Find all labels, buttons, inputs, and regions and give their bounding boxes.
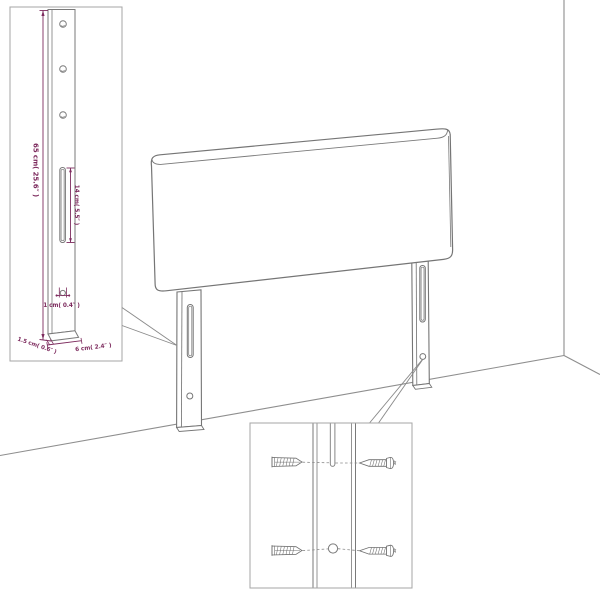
inset-leader-lines [122,308,177,346]
leg-height-dimension-label: 65 cm( 25.6″ ) [32,143,40,197]
hole-diameter-dimension-label: 1 cm( 0.4″ ) [43,303,80,309]
post-small-hole-icon [60,290,65,295]
screw-head [387,457,394,468]
headboard-left-leg [177,290,204,432]
right-leg-slot-inner [421,267,424,320]
mounting-detail-inset [250,423,412,588]
left-leg-slot-inner [189,306,192,356]
leg-detail-inset: 65 cm( 25.6″ ) 14 cm( 5.5″ ) 1 cm( 0.4″ … [10,7,122,361]
left-leg-side-edge [181,292,182,427]
leader-line-lower [122,326,177,346]
floor-line-right [564,356,600,375]
callout-line-left [370,359,423,423]
inset-box [250,423,412,588]
callout-line-right [379,359,423,423]
slot-length-dimension-label: 14 cm( 5.5″ ) [73,185,79,226]
screw-callout-lines [370,359,423,423]
strip-hole-icon [328,544,337,553]
leader-line-upper [122,308,177,346]
left-leg-hole-icon [187,393,193,399]
post-slot-inner [61,169,64,240]
leg-post-drawing [48,10,79,341]
headboard-panel [151,129,452,291]
headboard-assembly-diagram: 65 cm( 25.6″ ) 14 cm( 5.5″ ) 1 cm( 0.4″ … [0,0,600,600]
right-leg-hole-icon [420,354,426,360]
panel-outline [151,129,452,291]
diagram-canvas: 65 cm( 25.6″ ) 14 cm( 5.5″ ) 1 cm( 0.4″ … [0,0,600,600]
headboard [151,129,452,432]
headboard-right-leg [412,261,432,390]
